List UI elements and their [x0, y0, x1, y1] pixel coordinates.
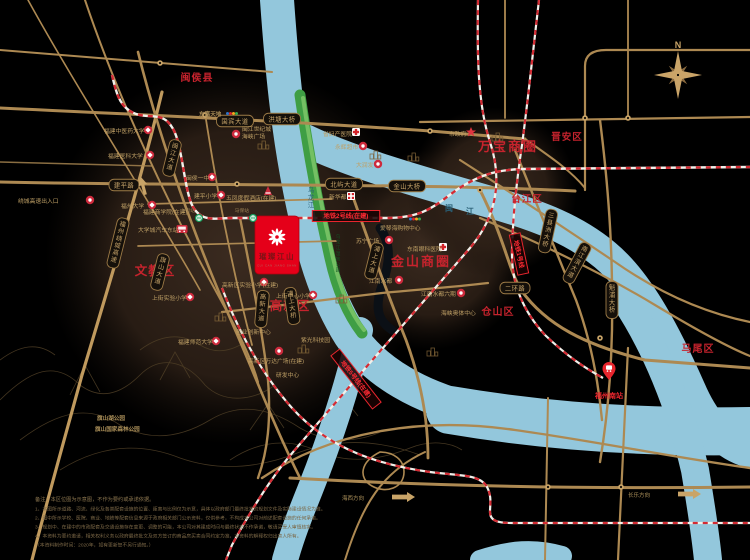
poi-label: 东南眼科医院 — [407, 245, 442, 253]
hospital-icon — [352, 128, 360, 136]
river-name-label: 江 — [466, 206, 474, 216]
poi-label: 永辉超市 — [335, 143, 358, 151]
poi-label: 福建师范大学 — [178, 338, 213, 346]
shop-icon — [385, 236, 393, 244]
poi-label: 江南水都 — [369, 277, 392, 285]
poi-label: 福建中医药大学 — [104, 127, 145, 135]
district-label: 晋安区 — [551, 131, 583, 143]
svg-text:马保站: 马保站 — [235, 207, 250, 214]
poi-item: 紫光科技园 — [301, 336, 330, 344]
svg-text:M: M — [251, 216, 255, 221]
poi-label: 高新区万达广场(在建) — [248, 357, 304, 365]
svg-text:洪塘大桥: 洪塘大桥 — [268, 114, 295, 123]
area-label: 旗山国家森林公园 — [95, 425, 140, 433]
poi-label: 紫光科技园 — [301, 336, 330, 344]
river-south-channel — [480, 551, 562, 560]
poi-label: 创业创新中心 — [236, 328, 271, 336]
road-name-pill: 建平路 — [109, 179, 139, 191]
poi-label: 市政府 — [449, 130, 467, 138]
school-icon — [212, 337, 220, 345]
shop-icon — [86, 196, 94, 204]
metro-line-label: 地铁2号线(在建) — [312, 211, 379, 222]
district-label: 万宝商圈 — [477, 139, 538, 155]
svg-text:二环路: 二环路 — [505, 283, 526, 292]
project-name: 璀璨江山 — [259, 251, 295, 261]
poi-label: 闽侯一中 — [186, 174, 209, 182]
river-name-label: 闽 — [445, 203, 453, 213]
svg-text:国宾大道: 国宾大道 — [221, 116, 248, 125]
svg-text:长乐方向: 长乐方向 — [628, 491, 650, 499]
disclaimer-line: 3、规划中、在建中的市政配套及交通设施存在变更、调整的可能，本公司对其建成时间与… — [35, 524, 316, 531]
shop-icon — [275, 347, 283, 355]
school-icon — [148, 201, 156, 209]
poi-label: 上街中心小学 — [276, 292, 311, 300]
poi-label: 建平小学 — [194, 192, 217, 200]
svg-text:金山大桥: 金山大桥 — [393, 181, 420, 190]
poi-label: 绕城高速出入口 — [18, 197, 59, 205]
svg-text:旗山湖公园: 旗山湖公园 — [97, 414, 125, 422]
poi-label: 高新区实验小学(在建) — [222, 281, 278, 289]
poi-label: 省妇产医院 — [323, 130, 352, 138]
poi-item: 海峡奥体中心 — [441, 309, 476, 317]
poi-item: 福建商学院(在建) — [143, 208, 188, 216]
shop-icon — [457, 289, 465, 297]
road-name-pill: 二环路 — [500, 282, 530, 294]
shop-icon — [359, 142, 367, 150]
road-name-pill: 金山大桥 — [389, 180, 426, 192]
compass-north-label: N — [675, 40, 682, 50]
disclaimer-line: 1、本图所示道路、河流、绿化及各类配套设施的位置、距离与比例仅为示意，具体以政府… — [35, 506, 326, 513]
road-name-pill: 魁浦大桥 — [606, 282, 618, 319]
svg-text:乌龙江: 乌龙江 — [308, 185, 315, 209]
disclaimer-line: 4、本资料为要约邀请，相关权利义务以政府最终批文及双方签订的商品房买卖合同约定为… — [35, 533, 302, 540]
shop-icon — [232, 130, 240, 138]
grid-icon — [347, 192, 355, 200]
shop-icon — [395, 276, 403, 284]
area-label: 旗山湖公园 — [97, 414, 125, 422]
poi-label: 爱琴海购物中心 — [380, 224, 421, 232]
poi-label: 研发中心 — [276, 371, 299, 379]
poi-label: 福州大学 — [121, 202, 144, 210]
svg-text:北屿大道: 北屿大道 — [330, 179, 357, 188]
school-icon — [217, 191, 225, 199]
river-vertical-label: 乌龙江湿地公园 — [336, 233, 341, 274]
poi-label: 福建医科大学 — [108, 152, 143, 160]
svg-text:M: M — [197, 216, 201, 221]
school-icon — [146, 151, 154, 159]
poi-item: 研发中心 — [276, 371, 299, 379]
poi-label: 新华都 — [329, 193, 347, 201]
district-label: 仓山区 — [481, 305, 515, 318]
road-name-pill: 国宾大道 — [217, 115, 254, 127]
school-icon — [186, 293, 194, 301]
poi-label: 苏宁广场 — [356, 237, 379, 245]
district-label: 台江区 — [511, 193, 543, 205]
svg-text:地铁2号线(在建): 地铁2号线(在建) — [324, 212, 369, 220]
district-label: 金山商圈 — [390, 254, 451, 270]
river-vertical-label: 乌龙江 — [308, 185, 315, 209]
poi-label: 江南水都六期 — [421, 290, 456, 298]
south-station-label: 福州南站 — [594, 391, 623, 400]
svg-text:旗山国家森林公园: 旗山国家森林公园 — [95, 425, 140, 433]
poi-label: 大学城汽车东站 — [138, 226, 179, 234]
svg-text:海西方向: 海西方向 — [342, 494, 364, 502]
road-name-pill: 高新大道 — [254, 290, 269, 328]
poi-label: 海峡广场 — [242, 133, 265, 141]
poi-label: 五凤度假酒店(在建) — [226, 194, 276, 202]
poi-label: 海峡奥体中心 — [441, 309, 476, 317]
svg-text:建平路: 建平路 — [114, 180, 135, 189]
location-map: 璀璨江山CUI CAN JIANG SHAN闽侯县文教区高新区万宝商圈金山商圈晋… — [0, 0, 750, 560]
poi-item: 创业创新中心 — [236, 328, 271, 336]
poi-label: 上街实验小学 — [152, 294, 187, 302]
svg-text:魁浦大桥: 魁浦大桥 — [609, 283, 616, 314]
road-name-pill: 洪塘大桥 — [264, 113, 301, 125]
svg-text:乌龙江湿地公园: 乌龙江湿地公园 — [336, 233, 341, 274]
road-name-pill: 北屿大道 — [326, 178, 363, 190]
district-label: 马尾区 — [682, 343, 715, 355]
disclaimer-line: 2、图中所示学校、医院、商业、地铁等配套信息来源于政府相关部门公示资料，仅供参考… — [35, 515, 321, 522]
poi-label: 福建商学院(在建) — [143, 208, 188, 216]
disclaimer-title: 备注：本区位图为示意图，不作为要约或承诺依据。 — [35, 495, 154, 503]
poi-label: 大润发 — [356, 161, 374, 169]
school-icon — [144, 126, 152, 134]
district-label: 闽侯县 — [181, 71, 214, 84]
shop-icon — [374, 160, 382, 168]
project-pinyin: CUI CAN JIANG SHAN — [257, 264, 297, 268]
svg-text:东嘉天地: 东嘉天地 — [199, 110, 222, 118]
disclaimer-line: （本资料制作时间：2020年，如有更新恕不另行通知。） — [35, 542, 154, 549]
poi-label: 闽江世纪城 — [242, 125, 271, 133]
